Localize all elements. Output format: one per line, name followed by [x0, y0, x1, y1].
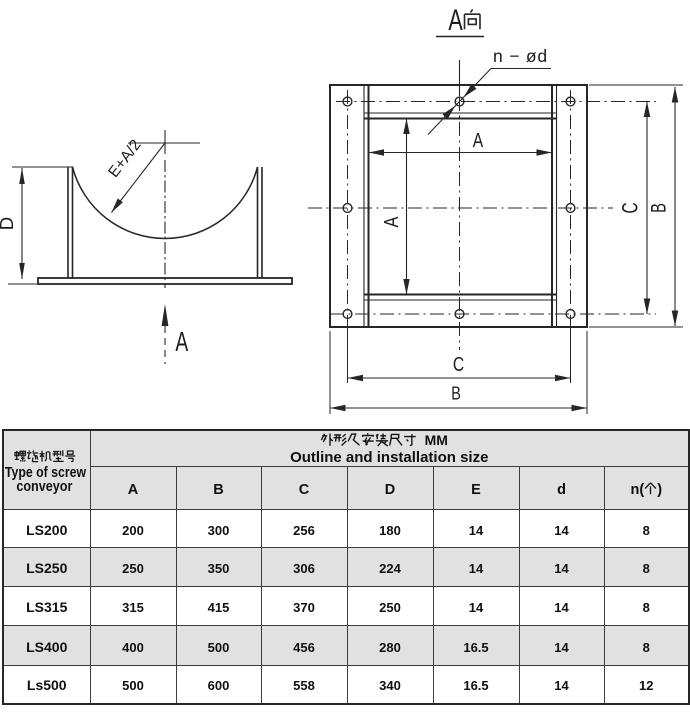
svg-text:A: A — [379, 216, 402, 227]
svg-text:B: B — [647, 203, 670, 213]
svg-text:A: A — [448, 5, 463, 37]
svg-text:A: A — [175, 328, 188, 358]
svg-text:E+A/2: E+A/2 — [105, 137, 144, 181]
svg-text:C: C — [453, 353, 464, 375]
svg-text:n − ød: n − ød — [493, 46, 548, 66]
svg-text:A: A — [473, 129, 483, 151]
svg-text:C: C — [619, 202, 643, 213]
svg-text:B: B — [451, 383, 461, 404]
svg-text:D: D — [0, 217, 17, 230]
